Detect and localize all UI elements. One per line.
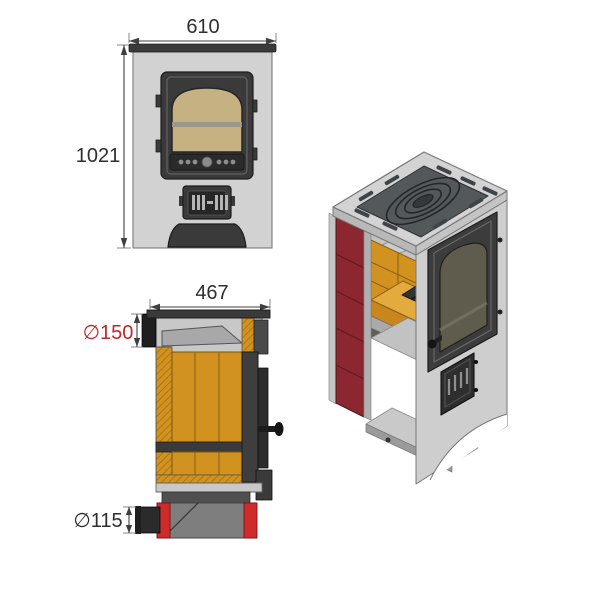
door-glass-band	[172, 122, 242, 127]
front-top-plate	[129, 44, 276, 52]
door-air-vents	[170, 154, 244, 170]
side-top-plate	[147, 310, 270, 318]
side-depth-dimension: 467	[150, 282, 270, 310]
side-upper-brick	[242, 318, 254, 352]
stove-technical-drawing: 610 1021	[0, 0, 600, 600]
front-width-label: 610	[186, 16, 219, 38]
side-door-handle-knob	[275, 422, 284, 436]
side-door-profile	[242, 352, 284, 500]
door-latch-top	[253, 100, 257, 112]
side-air-inlet-collar	[135, 506, 141, 534]
iso-tile-backing	[364, 231, 371, 420]
iso-door-hinge-top	[498, 238, 503, 243]
iso-door-hinge-bottom	[498, 310, 503, 315]
side-base-section	[157, 503, 257, 538]
side-base-red-rear	[244, 503, 257, 538]
side-ash-drawer	[162, 492, 250, 503]
front-fire-door	[156, 72, 257, 179]
iso-tile-panel	[329, 213, 371, 420]
side-section-view: 467 ∅150	[73, 282, 283, 538]
door-hinge-bottom	[156, 140, 161, 152]
door-glass	[172, 88, 242, 152]
front-ash-door	[179, 186, 235, 219]
side-air-inlet-label: ∅115	[73, 510, 122, 532]
side-door-handle-stem	[258, 426, 276, 432]
technical-drawing-svg: 610 1021	[0, 0, 600, 600]
side-air-inlet-dimension: ∅115	[73, 507, 136, 533]
iso-cutaway-view	[329, 152, 507, 484]
side-flue-label: ∅150	[83, 322, 134, 344]
iso-door-handle-knob	[428, 340, 437, 349]
side-ash-chamber	[156, 483, 262, 492]
front-base-trim	[168, 224, 246, 247]
side-grate-band	[156, 442, 246, 452]
side-floor-brick	[156, 475, 245, 483]
door-latch-bottom	[253, 148, 257, 160]
side-flue-dimension: ∅150	[83, 314, 143, 347]
side-air-inlet-stub	[140, 507, 160, 533]
side-firebox-bricks-upper	[172, 352, 242, 442]
front-view: 610 1021	[76, 16, 276, 248]
door-hinge-top	[156, 95, 161, 107]
front-width-dimension: 610	[129, 16, 276, 44]
side-depth-label: 467	[195, 282, 228, 304]
side-back-brick-wall	[156, 347, 172, 475]
side-door-top-profile	[254, 320, 268, 354]
front-height-dimension: 1021	[76, 45, 131, 248]
front-height-label: 1021	[76, 145, 121, 167]
side-firebox-bricks-lower	[172, 452, 242, 475]
side-flue-collar	[142, 314, 156, 347]
